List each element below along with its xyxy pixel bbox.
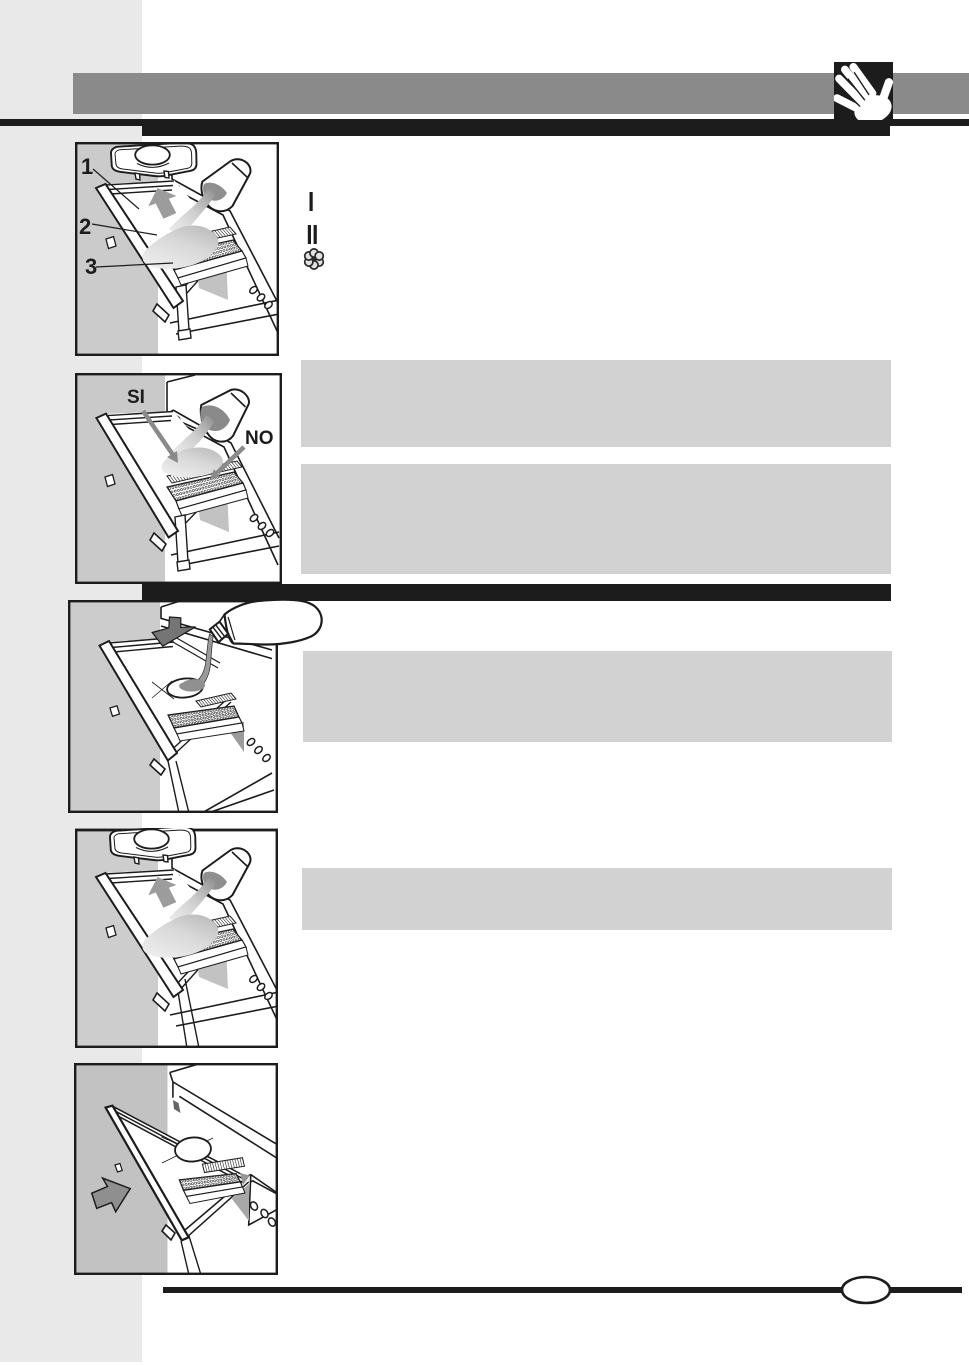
svg-text:1: 1 — [81, 154, 93, 179]
svg-text:2: 2 — [79, 214, 91, 239]
svg-text:3: 3 — [85, 254, 97, 279]
svg-text:SI: SI — [127, 387, 145, 408]
svg-text:NO: NO — [245, 428, 274, 449]
